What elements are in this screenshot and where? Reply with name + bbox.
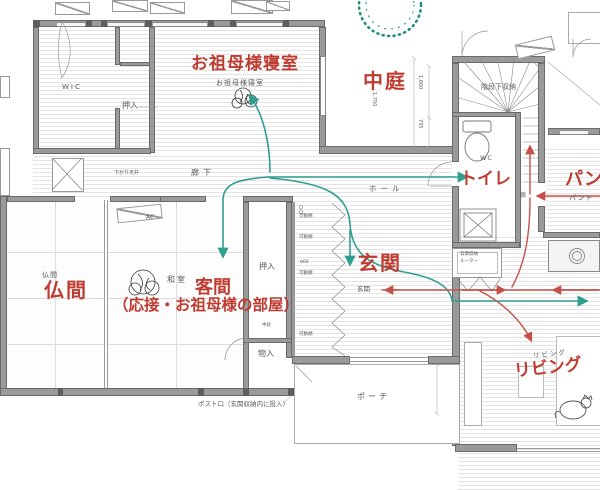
label-pantry-small: パント xyxy=(569,195,593,202)
label-hall: ホール xyxy=(369,185,404,193)
wall-line xyxy=(517,451,600,452)
window-tag xyxy=(266,1,290,11)
label-oshiire-1: 押入 xyxy=(122,102,138,110)
wall-post xyxy=(33,20,40,27)
label-ac: AC xyxy=(146,215,154,221)
wall-post xyxy=(208,20,214,27)
tree-icon xyxy=(359,0,421,36)
wall-segment xyxy=(292,356,350,364)
wall-segment xyxy=(452,112,520,117)
label-shelf-3: 可動棚 xyxy=(299,272,313,277)
label-shelf-4: 可動棚 xyxy=(299,333,313,338)
porch-outline xyxy=(294,364,460,444)
label-washitsu: 和室 xyxy=(167,276,187,284)
label-monoire: 物入 xyxy=(258,350,274,358)
floor-hall-entrance xyxy=(292,198,452,356)
label-toilet: トイレ xyxy=(460,171,511,188)
wall-post xyxy=(145,20,152,27)
wall-tatami-south xyxy=(0,388,294,396)
label-grandmother-bedroom: お祖母様寝室 xyxy=(191,56,299,73)
label-butsuma: 仏間 xyxy=(44,280,88,300)
label-porch: ポーチ xyxy=(357,393,390,401)
wall-segment xyxy=(115,27,120,65)
wall-segment xyxy=(120,62,150,66)
neighbor-structure xyxy=(568,12,600,44)
wall-segment xyxy=(515,112,521,248)
diagonal-roof-line xyxy=(548,62,600,105)
window-tag xyxy=(150,2,185,14)
label-shelf-1: 可動棚 xyxy=(299,215,313,220)
fusuma-track xyxy=(107,200,108,388)
window xyxy=(237,22,282,27)
wall-segment xyxy=(243,338,292,343)
window xyxy=(560,130,588,135)
window xyxy=(320,56,326,116)
window xyxy=(0,76,10,98)
wall-segment xyxy=(452,56,545,63)
window xyxy=(0,148,10,196)
label-dim-1750: 1,750 xyxy=(371,92,376,106)
wall-post xyxy=(230,20,236,27)
tatami-line xyxy=(8,344,104,345)
wall-segment xyxy=(538,206,545,232)
label-wc: WC xyxy=(480,155,493,162)
wall-segment xyxy=(455,444,517,452)
label-shelf-2: 可動棚 xyxy=(299,236,313,241)
label-entrance-storage: 玄関収納 xyxy=(460,253,478,258)
wall-segment xyxy=(160,196,206,202)
wall-post xyxy=(243,388,249,396)
label-oshiire-2: 押入 xyxy=(259,263,275,271)
label-dim-660: 660 xyxy=(300,261,309,266)
window-tag xyxy=(112,0,148,12)
tatami-line xyxy=(176,202,177,388)
wall-segment xyxy=(538,63,545,183)
wall-post xyxy=(198,388,204,396)
label-pantry: パン xyxy=(565,171,600,189)
label-bedroom-small: お祖母様寝室 xyxy=(216,80,264,87)
wall-line xyxy=(517,448,600,449)
label-under-stairs-storage: 階段下収納 xyxy=(481,84,516,91)
label-dim-735: 735 xyxy=(417,119,422,129)
label-post-slot: ポスト口（玄関収納内に投入） xyxy=(198,401,289,408)
label-courtyard: 中庭 xyxy=(363,71,407,91)
wall-post xyxy=(283,20,289,27)
label-chudan: 中段 xyxy=(262,324,271,329)
wall-segment xyxy=(149,27,155,153)
wall-segment xyxy=(33,27,39,153)
window xyxy=(153,22,207,27)
wall-segment xyxy=(452,186,459,248)
floor-plan: お祖母様寝室 中庭 トイレ パン 仏間 客間 （応接・お祖母様の部屋） 玄関 リ… xyxy=(0,0,600,490)
label-butsuma-small: 仏間 xyxy=(42,272,58,279)
cabinet-face xyxy=(292,202,295,360)
wall-post xyxy=(86,20,92,27)
floor-pantry xyxy=(546,146,600,234)
label-entrance-small: 玄関 xyxy=(357,286,370,293)
wall-courtyard-south xyxy=(319,146,455,154)
fusuma-track xyxy=(104,200,105,388)
wall-segment xyxy=(428,356,460,364)
tatami-line xyxy=(8,252,104,253)
label-guest-room-sub: （応接・お祖母様の部屋） xyxy=(113,298,299,314)
kitchen-counter xyxy=(548,240,600,272)
entrance-sliding-door xyxy=(348,361,428,362)
label-lowered-ceiling: 下がり天井 xyxy=(114,171,139,176)
label-rou: 廊 xyxy=(520,193,526,199)
entrance-sliding-door xyxy=(348,357,428,358)
wall-segment xyxy=(0,196,7,396)
wall-post xyxy=(101,20,107,27)
window xyxy=(57,22,85,27)
window xyxy=(108,22,144,27)
hatch-box xyxy=(52,158,84,192)
label-router: ルーター xyxy=(460,260,478,265)
label-guest-room: 客間 xyxy=(195,279,231,297)
label-corridor: 廊下 xyxy=(191,169,215,177)
label-entrance: 玄関 xyxy=(358,253,402,273)
label-wic: WIC xyxy=(62,84,82,91)
window-tag xyxy=(55,2,90,15)
wall-segment xyxy=(543,232,600,238)
wall-segment xyxy=(7,196,75,202)
label-dim-1800: 1,800 xyxy=(417,75,422,89)
wall-post xyxy=(58,388,63,396)
wall-segment xyxy=(33,148,151,154)
stairs xyxy=(456,57,540,182)
tv-board xyxy=(464,342,482,426)
wall-segment xyxy=(115,108,120,153)
wall-segment xyxy=(110,196,162,202)
